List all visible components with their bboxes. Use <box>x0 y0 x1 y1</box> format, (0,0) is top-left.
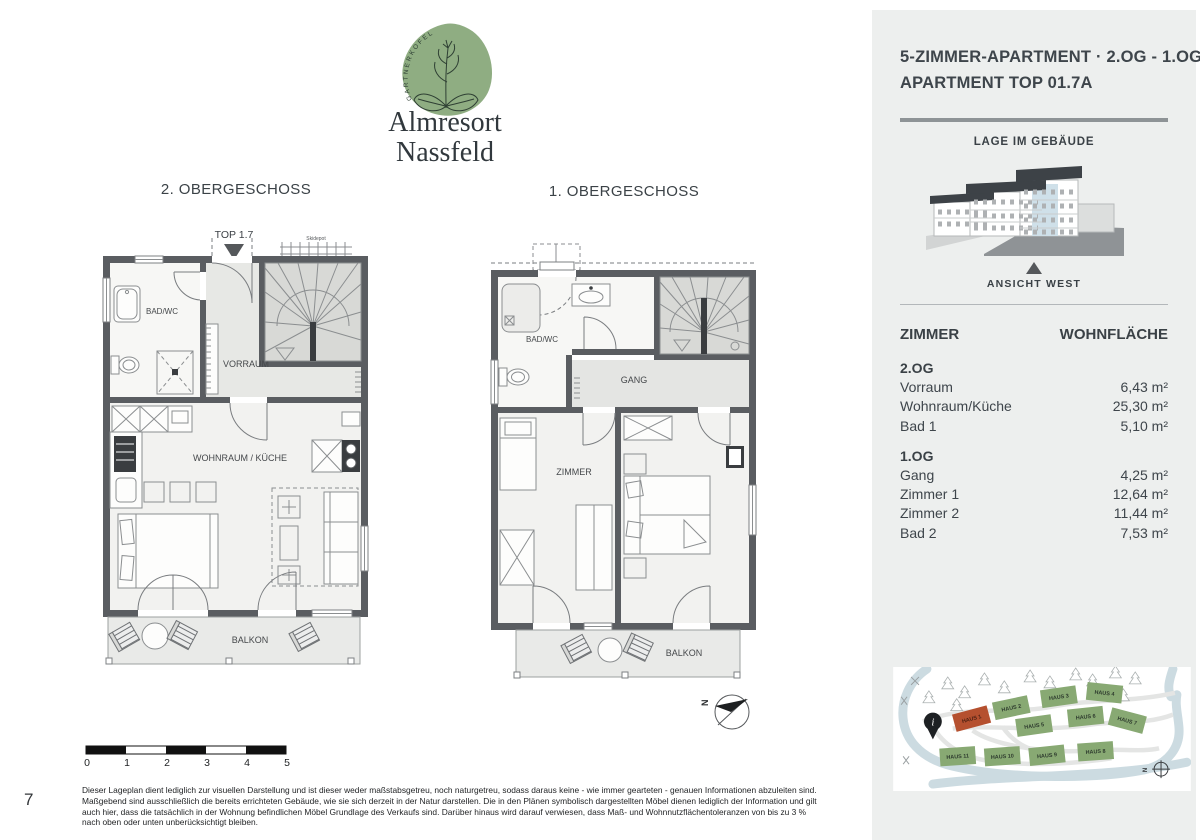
divider <box>900 118 1168 122</box>
shower <box>502 284 540 332</box>
logo-name-line2: Nassfeld <box>345 138 545 168</box>
entry-door-opening <box>212 256 252 263</box>
toilet <box>111 356 139 374</box>
room-label-bath: BAD/WC <box>146 307 178 316</box>
tv-screen <box>729 449 741 465</box>
location-heading: LAGE IM GEBÄUDE <box>900 136 1168 148</box>
floorplan-1og: BAD/WC GANG ZIMMER <box>488 240 760 680</box>
section-label: 1.OG <box>900 447 1168 466</box>
balcony-door-opening <box>258 610 296 617</box>
gang-floor <box>572 360 749 407</box>
north-label: N <box>700 700 710 707</box>
ski-depot: Skidepot <box>280 236 352 259</box>
col-room: ZIMMER <box>900 326 959 343</box>
view-label: ANSICHT WEST <box>900 278 1168 290</box>
room-label-vorraum: VORRAUM <box>223 359 269 369</box>
table-row: Vorraum6,43 m² <box>900 378 1168 397</box>
scale-tick: 1 <box>121 757 133 769</box>
view-direction-icon <box>1026 262 1042 274</box>
svg-text:Skidepot: Skidepot <box>306 236 326 242</box>
entry-threshold <box>540 262 574 270</box>
plan-title-2og: 2. OBERGESCHOSS <box>100 181 372 198</box>
col-area: WOHNFLÄCHE <box>1060 326 1168 343</box>
room-label-balcony: BALKON <box>232 635 269 645</box>
zimmer1-door-opening <box>583 407 615 413</box>
scale-tick: 4 <box>241 757 253 769</box>
apartment-title-line2: APARTMENT TOP 01.7A <box>900 74 1168 93</box>
scale-tick: 2 <box>161 757 173 769</box>
bed-single <box>500 418 536 490</box>
coat-rack <box>206 324 218 394</box>
room-label-zimmer1: ZIMMER <box>556 467 592 477</box>
wardrobe <box>624 416 672 440</box>
north-compass-icon: N <box>696 684 762 740</box>
balcony: BALKON <box>106 617 360 664</box>
section-label: 2.OG <box>900 359 1168 378</box>
table-row: Zimmer 211,44 m² <box>900 504 1168 523</box>
brochure-page: GARTNERKOFEL Almresort Nassfeld 2. OBERG… <box>0 0 1200 840</box>
scale-tick: 0 <box>81 757 93 769</box>
table-row: Bad 27,53 m² <box>900 524 1168 543</box>
scale-tick: 3 <box>201 757 213 769</box>
resort-site-map: HAUS 1 HAUS 2 HAUS 3 HAUS 4 HAUS 5 HAUS … <box>893 667 1191 791</box>
apartment-title-line1: 5-ZIMMER-APARTMENT · 2.OG - 1.OG <box>900 48 1168 67</box>
french-door-opening <box>138 610 208 617</box>
plan-title-1og: 1. OBERGESCHOSS <box>488 183 760 200</box>
bathtub <box>114 286 140 322</box>
table-row: Wohnraum/Küche25,30 m² <box>900 397 1168 416</box>
room-label-gang: GANG <box>621 375 648 385</box>
toilet <box>499 368 529 386</box>
logo-wordmark: Almresort Nassfeld <box>345 108 545 168</box>
room-area-table: ZIMMER WOHNFLÄCHE 2.OG Vorraum6,43 m² Wo… <box>900 326 1168 543</box>
divider <box>900 304 1168 305</box>
table-row: Gang4,25 m² <box>900 466 1168 485</box>
entry-door-opening <box>538 270 576 277</box>
table-header: ZIMMER WOHNFLÄCHE <box>900 326 1168 343</box>
table-row: Bad 15,10 m² <box>900 417 1168 436</box>
top-unit-label: TOP 1.7 <box>215 229 254 241</box>
room-label-balcony: BALKON <box>666 648 703 658</box>
closet <box>576 505 612 590</box>
building-elevation <box>924 158 1144 260</box>
svg-text:i: i <box>931 717 934 729</box>
balcony-door-opening <box>533 623 570 630</box>
svg-text:N: N <box>1143 768 1149 772</box>
page-number: 7 <box>24 790 33 810</box>
wardrobe <box>500 530 534 585</box>
sink <box>572 284 610 306</box>
logo-name-line1: Almresort <box>345 108 545 138</box>
room-label-living: WOHNRAUM / KÜCHE <box>193 453 287 463</box>
bed-double <box>118 514 218 588</box>
disclaimer-text: Dieser Lageplan dient lediglich zur visu… <box>82 785 826 828</box>
balcony: BALKON <box>514 630 740 678</box>
room-label-bath: BAD/WC <box>526 335 558 344</box>
scale-tick: 5 <box>281 757 293 769</box>
zimmer2-door-opening <box>698 407 730 413</box>
floorplan-2og: TOP 1.7 Skidepot <box>100 226 372 681</box>
table-row: Zimmer 112,64 m² <box>900 485 1168 504</box>
info-panel: 5-ZIMMER-APARTMENT · 2.OG - 1.OG APARTME… <box>872 10 1196 840</box>
balcony-door-opening <box>673 623 710 630</box>
scale-bar <box>85 744 287 756</box>
